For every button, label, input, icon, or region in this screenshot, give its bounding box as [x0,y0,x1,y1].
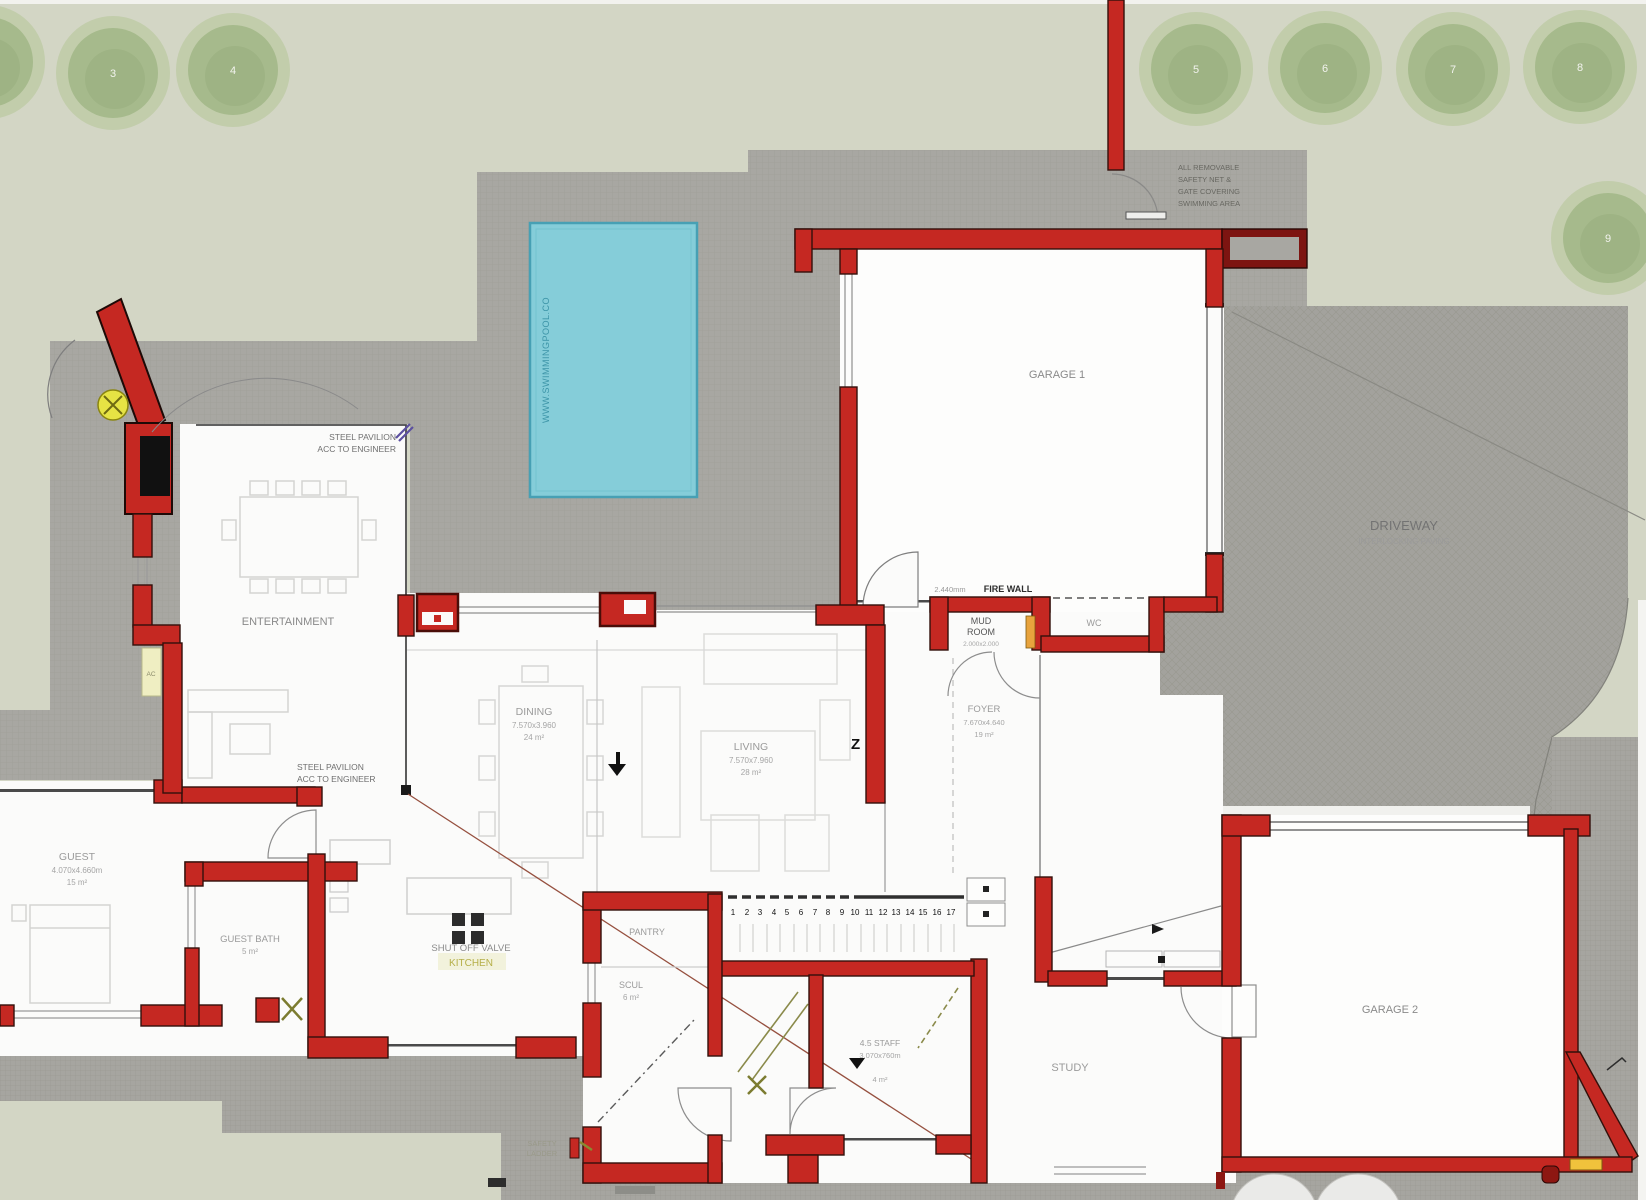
svg-text:10: 10 [851,908,860,917]
svg-text:LIVING: LIVING [734,741,768,753]
svg-text:9: 9 [1605,233,1611,245]
svg-text:DRIVEWAY: DRIVEWAY [1370,518,1438,533]
svg-text:3: 3 [110,68,116,80]
svg-text:9: 9 [840,908,845,917]
svg-text:4 m²: 4 m² [873,1075,889,1084]
svg-text:ACC TO ENGINEER: ACC TO ENGINEER [317,444,396,454]
svg-text:FIRE WALL: FIRE WALL [984,584,1033,594]
svg-text:7: 7 [1450,64,1456,76]
svg-text:GARAGE 2: GARAGE 2 [1362,1004,1418,1016]
svg-text:WC: WC [1087,618,1102,628]
svg-text:KITCHEN: KITCHEN [449,958,493,969]
svg-text:7: 7 [813,908,818,917]
svg-text:4: 4 [230,65,236,77]
svg-text:6 m²: 6 m² [623,993,639,1002]
svg-text:6: 6 [1322,63,1328,75]
svg-text:8: 8 [826,908,831,917]
svg-text:WWW.SWIMMINGPOOL.CO: WWW.SWIMMINGPOOL.CO [541,297,551,423]
svg-text:SCUL: SCUL [619,980,643,990]
svg-text:7.570x3.960: 7.570x3.960 [512,721,557,730]
svg-text:8: 8 [1577,62,1583,74]
svg-text:AC: AC [146,671,155,678]
svg-text:7.670x4.640: 7.670x4.640 [963,718,1004,727]
svg-text:11: 11 [865,908,874,917]
svg-text:SWIMMING AREA: SWIMMING AREA [1178,199,1240,208]
svg-text:1: 1 [731,908,736,917]
svg-text:SAFETY: SAFETY [527,1139,556,1148]
svg-text:SHUT OFF VALVE: SHUT OFF VALVE [431,943,510,954]
svg-text:SAFETY NET &: SAFETY NET & [1178,175,1231,184]
svg-text:2: 2 [745,908,750,917]
svg-text:6: 6 [799,908,804,917]
svg-text:GUEST BATH: GUEST BATH [220,934,280,945]
svg-text:GARAGE 1: GARAGE 1 [1029,369,1085,381]
svg-text:4.070x4.660m: 4.070x4.660m [52,866,103,875]
svg-text:MUD: MUD [971,616,992,626]
svg-text:2.440mm: 2.440mm [934,585,965,594]
svg-text:ENTERTAINMENT: ENTERTAINMENT [242,616,335,628]
svg-text:STUDY: STUDY [1051,1062,1089,1074]
svg-text:16: 16 [933,908,942,917]
svg-text:GUEST: GUEST [59,851,96,863]
svg-text:19 m²: 19 m² [974,730,994,739]
svg-text:STEEL PAVILION: STEEL PAVILION [297,762,364,772]
svg-text:5: 5 [1193,64,1199,76]
svg-text:PANTRY: PANTRY [629,927,665,937]
svg-text:24 m²: 24 m² [524,733,545,742]
svg-text:GATE COVERING: GATE COVERING [1178,187,1240,196]
svg-text:STEEL PAVILION: STEEL PAVILION [329,432,396,442]
svg-text:17: 17 [947,908,956,917]
svg-text:5 m²: 5 m² [242,947,258,956]
svg-text:12: 12 [879,908,888,917]
svg-text:INTERLOCKING PAVING: INTERLOCKING PAVING [1358,537,1449,546]
svg-text:ALL REMOVABLE: ALL REMOVABLE [1178,163,1239,172]
svg-text:LADDER: LADDER [527,1149,558,1158]
svg-text:5: 5 [785,908,790,917]
svg-text:4.5 STAFF: 4.5 STAFF [860,1038,900,1048]
svg-text:15 m²: 15 m² [67,878,88,887]
svg-text:3.070x760m: 3.070x760m [859,1051,900,1060]
svg-text:ACC TO ENGINEER: ACC TO ENGINEER [297,774,376,784]
svg-text:4: 4 [772,908,777,917]
svg-text:Z: Z [851,736,860,753]
svg-text:7.570x7.960: 7.570x7.960 [729,756,774,765]
svg-text:3: 3 [758,908,763,917]
svg-text:15: 15 [919,908,928,917]
svg-text:DINING: DINING [516,706,553,718]
svg-text:2.000x2.000: 2.000x2.000 [963,641,999,648]
svg-text:28 m²: 28 m² [741,768,762,777]
svg-text:13: 13 [892,908,901,917]
svg-text:14: 14 [906,908,915,917]
svg-text:FOYER: FOYER [968,704,1001,715]
svg-text:ROOM: ROOM [967,627,995,637]
